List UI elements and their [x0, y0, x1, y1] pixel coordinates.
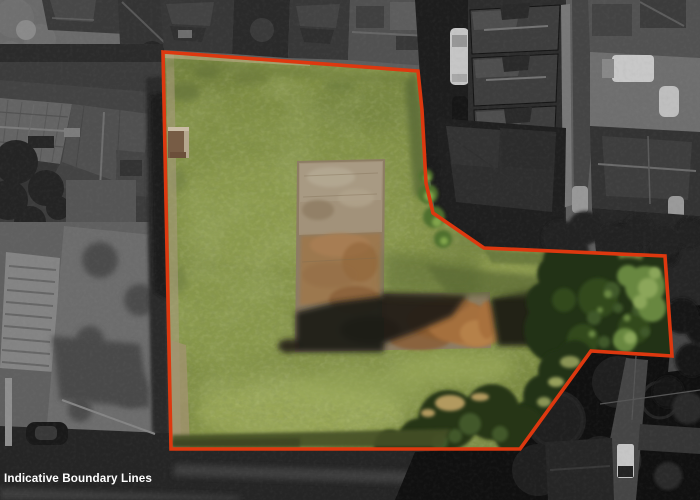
svg-text:Indicative Boundary Lines: Indicative Boundary Lines: [4, 472, 152, 485]
